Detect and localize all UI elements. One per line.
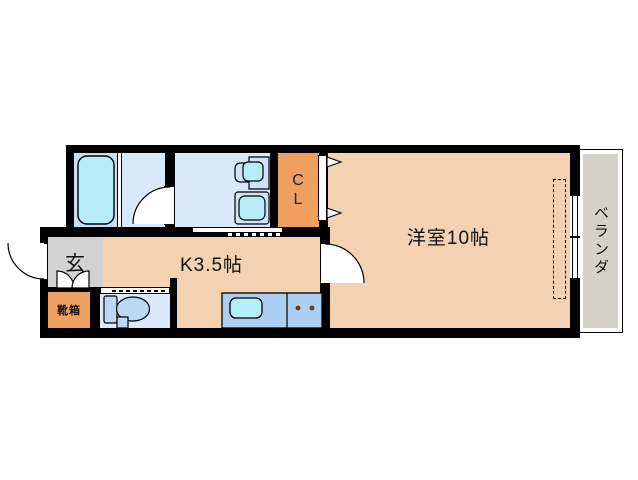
entrance-door-swing-icon <box>8 243 44 279</box>
washbasin-icon <box>235 157 269 189</box>
fixtures-layer <box>0 0 638 480</box>
closet-door-arrow-icon <box>327 157 341 218</box>
changing-room-door-swing-icon <box>133 187 170 224</box>
stove-burner-icon <box>310 306 315 311</box>
kitchen-sink-icon <box>230 298 262 318</box>
kitchen-counter-icon <box>222 293 322 328</box>
stove-burner-icon <box>296 306 301 311</box>
western-room-door-swing-icon <box>325 244 364 283</box>
bathtub-icon <box>78 156 114 224</box>
toilet-icon <box>104 296 150 328</box>
washing-machine-pan-icon <box>235 192 269 224</box>
shoe-box-door-fans-icon <box>57 271 89 288</box>
floor-plan: 玄 靴箱 K3.5帖 洋室10帖 C L ベランダ <box>0 0 638 480</box>
